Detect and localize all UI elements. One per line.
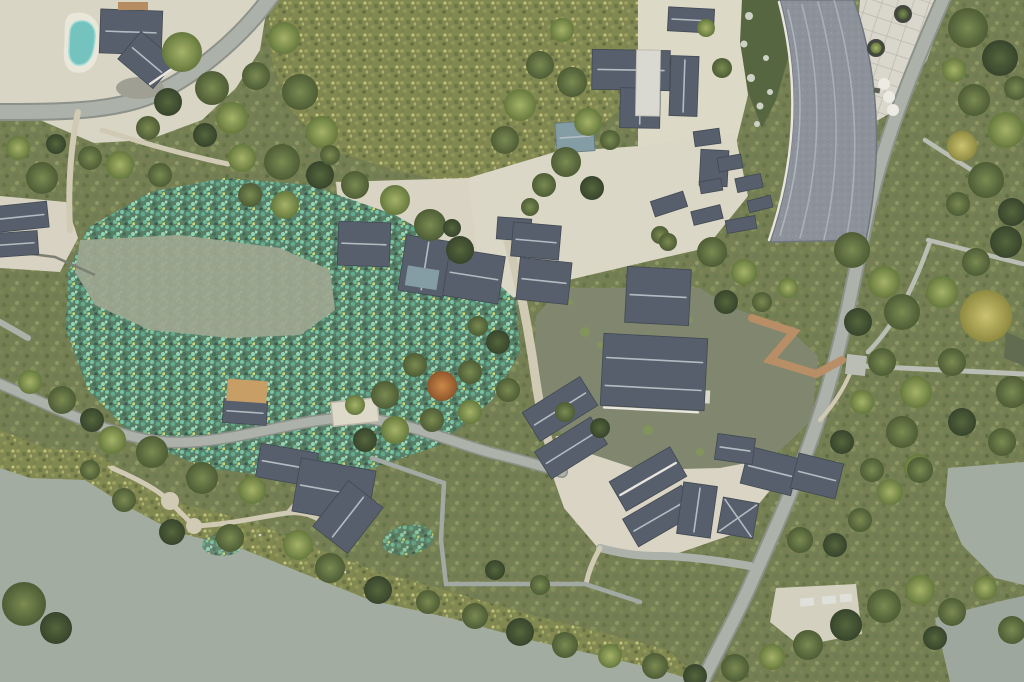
aerial-photo <box>0 0 1024 682</box>
haze-overlay <box>0 0 1024 682</box>
aerial-photo-canvas <box>0 0 1024 682</box>
